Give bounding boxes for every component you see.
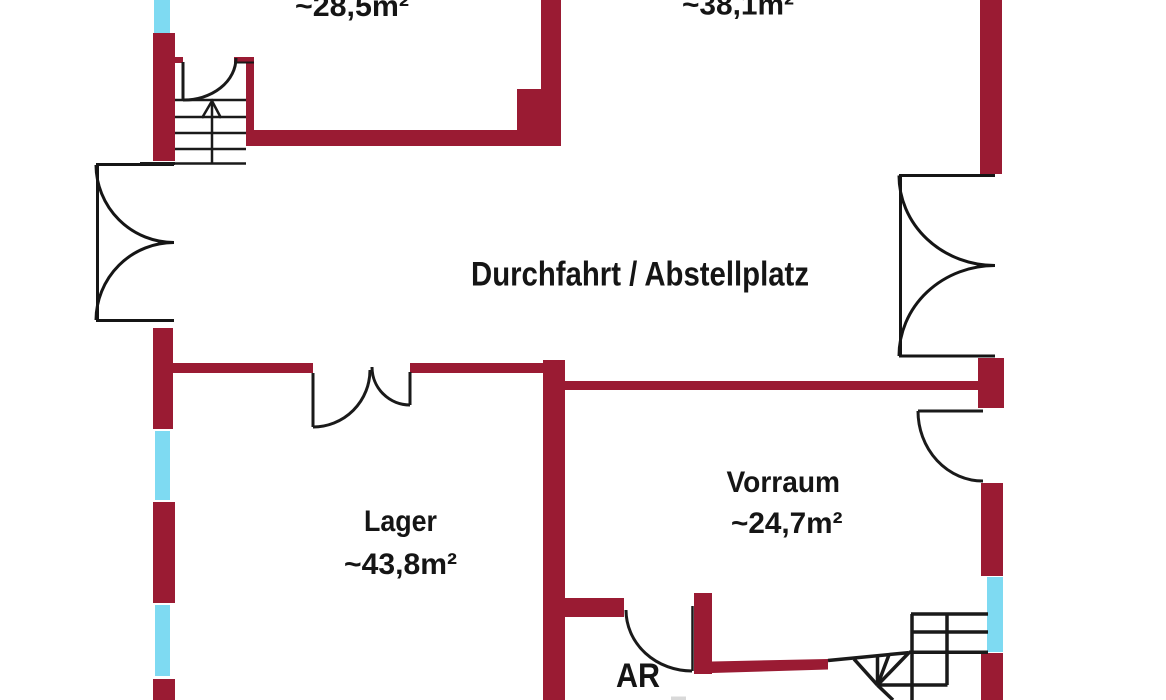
svg-text:AR: AR [616, 657, 660, 695]
svg-text:~43,8m²: ~43,8m² [344, 548, 457, 581]
svg-text:~28,5m²: ~28,5m² [295, 0, 409, 23]
svg-text:Lager: Lager [364, 505, 437, 538]
svg-text:~24,7m²: ~24,7m² [731, 507, 843, 540]
svg-text:Vorraum: Vorraum [727, 466, 841, 499]
svg-text:~38,1m²: ~38,1m² [682, 0, 794, 22]
svg-text:Durchfahrt / Abstellplatz: Durchfahrt / Abstellplatz [471, 256, 809, 294]
